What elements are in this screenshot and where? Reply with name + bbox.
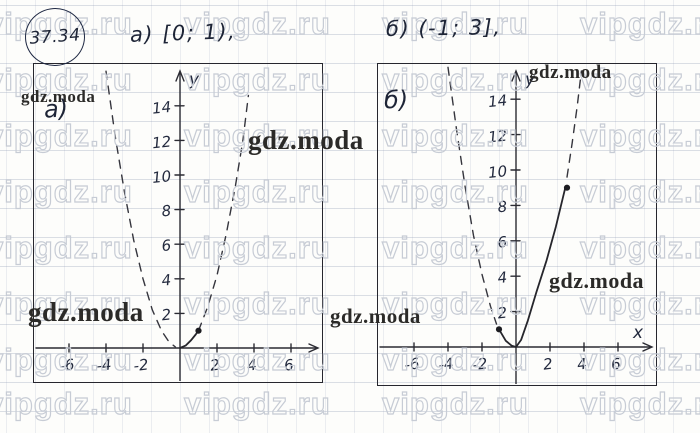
- x-tick-label: -2: [132, 355, 149, 375]
- y-tick-label: 14: [487, 91, 508, 111]
- y-axis-label: y: [188, 70, 200, 90]
- curve-dashed-segment: [199, 95, 249, 330]
- y-tick-label: 4: [497, 268, 508, 287]
- curve-dashed-segment: [567, 71, 581, 177]
- curve-endpoint-dot: [195, 328, 201, 334]
- x-tick-label: -6: [403, 354, 420, 374]
- curve-solid-segment: [499, 188, 565, 347]
- y-tick-label: 2: [497, 304, 508, 323]
- curve-solid-segment: [180, 331, 199, 348]
- x-tick-label: 4: [246, 356, 258, 375]
- x-tick-label: 6: [283, 356, 295, 375]
- x-tick-label: 4: [576, 355, 588, 374]
- graph-a-plot: y-6-4-22462468101214: [34, 64, 321, 381]
- part-b-interval-annotation: б) (-1; 3],: [386, 15, 502, 41]
- x-tick-label: -2: [471, 354, 488, 374]
- notebook-page: y-6-4-22462468101214 yx-6-4-224624681012…: [0, 0, 700, 433]
- y-tick-label: 2: [161, 305, 172, 324]
- part-a-interval-annotation: а) [0; 1),: [130, 19, 237, 47]
- y-axis-label: y: [524, 70, 536, 90]
- x-tick-label: -6: [58, 355, 75, 375]
- x-tick-label: -4: [437, 354, 454, 374]
- y-tick-label: 8: [161, 202, 172, 221]
- y-tick-label: 4: [161, 271, 172, 290]
- graph-b-plot: yx-6-4-22462468101214: [378, 64, 655, 384]
- x-axis-label: x: [632, 323, 644, 343]
- curve-endpoint-dot: [564, 185, 570, 191]
- problem-number: 37.34: [29, 25, 81, 49]
- y-tick-label: 8: [497, 197, 508, 216]
- y-tick-label: 12: [151, 132, 172, 152]
- graph-a-frame: y-6-4-22462468101214: [33, 63, 323, 383]
- x-tick-label: -4: [95, 355, 112, 375]
- y-tick-label: 10: [151, 167, 172, 187]
- graph-b-corner-label: б): [384, 86, 409, 115]
- x-tick-label: 6: [610, 355, 622, 374]
- y-tick-label: 6: [497, 233, 508, 252]
- y-tick-label: 12: [487, 127, 508, 147]
- x-tick-label: 2: [209, 356, 221, 375]
- curve-endpoint-dot: [496, 326, 502, 332]
- x-tick-label: 2: [542, 355, 554, 374]
- graph-b-frame: yx-6-4-22462468101214: [377, 63, 657, 386]
- graph-a-corner-label: а): [43, 94, 69, 123]
- y-tick-label: 6: [161, 236, 172, 255]
- y-tick-label: 10: [487, 162, 508, 182]
- y-tick-label: 14: [151, 98, 172, 118]
